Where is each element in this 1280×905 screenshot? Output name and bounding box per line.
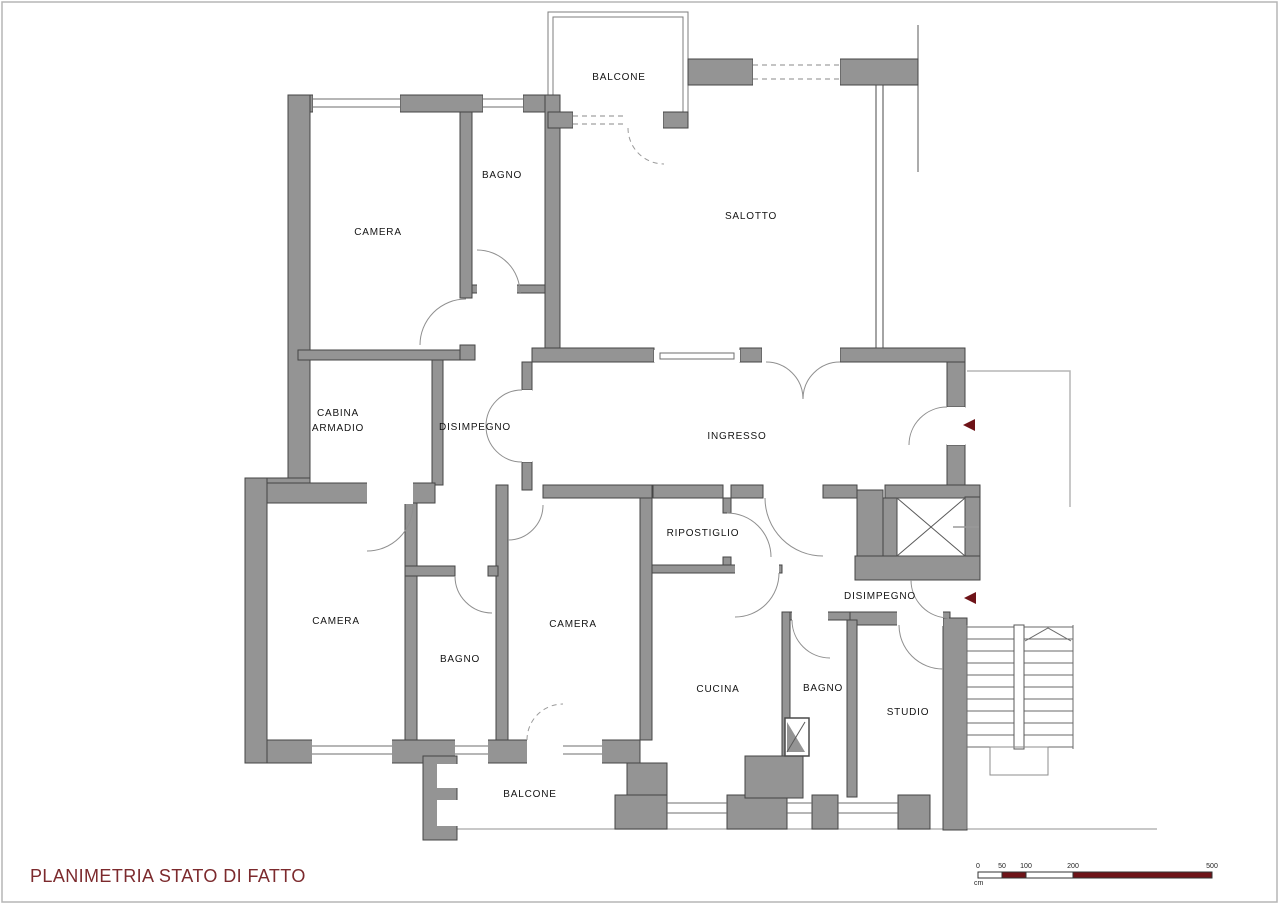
scale-tick-200: 200 <box>1067 863 1079 870</box>
scale-tick-0: 0 <box>976 863 980 870</box>
stair-landing-outline <box>990 747 1048 775</box>
scale-bar: 0 50 100 200 500 cm <box>974 863 1218 887</box>
wall-niche <box>654 350 740 362</box>
thin-partition <box>876 85 883 348</box>
landing-outline <box>967 371 1070 507</box>
scale-segment-dark-1 <box>1002 872 1026 878</box>
scale-tick-100: 100 <box>1020 863 1032 870</box>
room-label-balcone-sud: BALCONE <box>503 789 556 800</box>
room-label-salotto: SALOTTO <box>725 211 777 222</box>
room-label-balcone-top: BALCONE <box>592 72 645 83</box>
doors-layer <box>367 128 949 740</box>
scale-tick-50: 50 <box>998 863 1006 870</box>
scale-unit: cm <box>974 880 984 887</box>
room-label-camera-sud: CAMERA <box>549 619 597 630</box>
room-label-camera-ovest: CAMERA <box>312 616 360 627</box>
room-label-bagno-sud: BAGNO <box>803 683 843 694</box>
room-label-cucina: CUCINA <box>696 684 739 695</box>
service-entrance-arrow-icon <box>964 592 976 604</box>
room-label-camera-nw: CAMERA <box>354 227 402 238</box>
planter-structure <box>423 756 458 840</box>
drawing-sheet: BALCONE BAGNO CAMERA SALOTTO CABINA ARMA… <box>0 0 1280 905</box>
room-label-cabina-line2: ARMADIO <box>312 423 364 434</box>
windows-layer <box>312 58 898 813</box>
room-label-disimpegno-sud: DISIMPEGNO <box>844 591 916 602</box>
room-labels-layer: BALCONE BAGNO CAMERA SALOTTO CABINA ARMA… <box>312 72 929 800</box>
room-label-cabina-line1: CABINA <box>317 408 359 419</box>
scale-tick-500: 500 <box>1206 863 1218 870</box>
staircase <box>967 625 1073 829</box>
room-label-studio: STUDIO <box>887 707 930 718</box>
room-label-bagno-ovest: BAGNO <box>440 654 480 665</box>
walls-layer <box>245 59 980 830</box>
room-label-disimpegno-centro: DISIMPEGNO <box>439 422 511 433</box>
balcony-top-outline <box>548 12 688 115</box>
scale-segment-dark-2 <box>1073 872 1212 878</box>
floor-plan: BALCONE BAGNO CAMERA SALOTTO CABINA ARMA… <box>0 0 1280 905</box>
room-label-ripostiglio: RIPOSTIGLIO <box>667 528 740 539</box>
flue-shaft <box>785 718 809 756</box>
room-label-bagno-nw: BAGNO <box>482 170 522 181</box>
room-label-ingresso: INGRESSO <box>707 431 766 442</box>
drawing-title: PLANIMETRIA STATO DI FATTO <box>30 866 306 886</box>
